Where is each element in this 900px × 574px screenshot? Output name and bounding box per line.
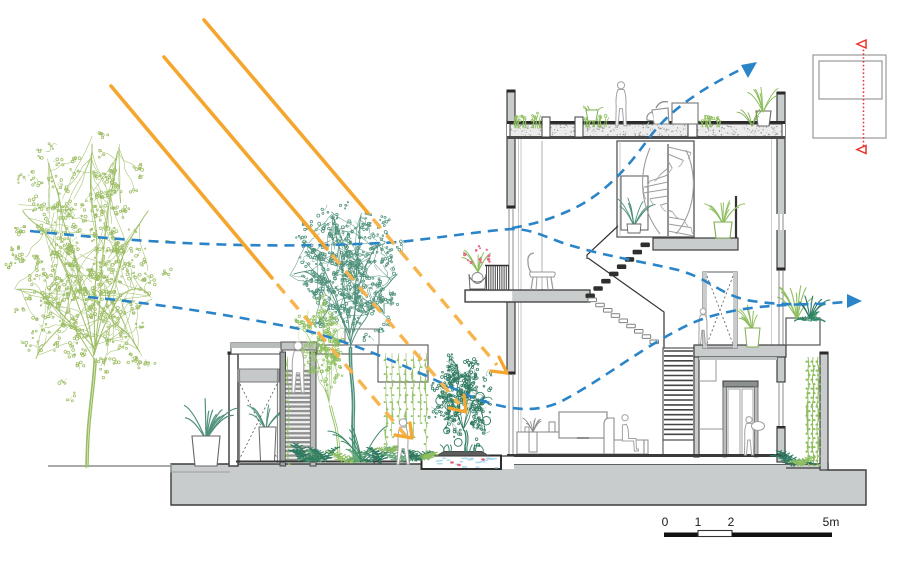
svg-text:0: 0 bbox=[662, 515, 669, 529]
svg-text:2: 2 bbox=[728, 515, 735, 529]
svg-text:1: 1 bbox=[695, 515, 702, 529]
svg-text:5m: 5m bbox=[823, 515, 840, 529]
